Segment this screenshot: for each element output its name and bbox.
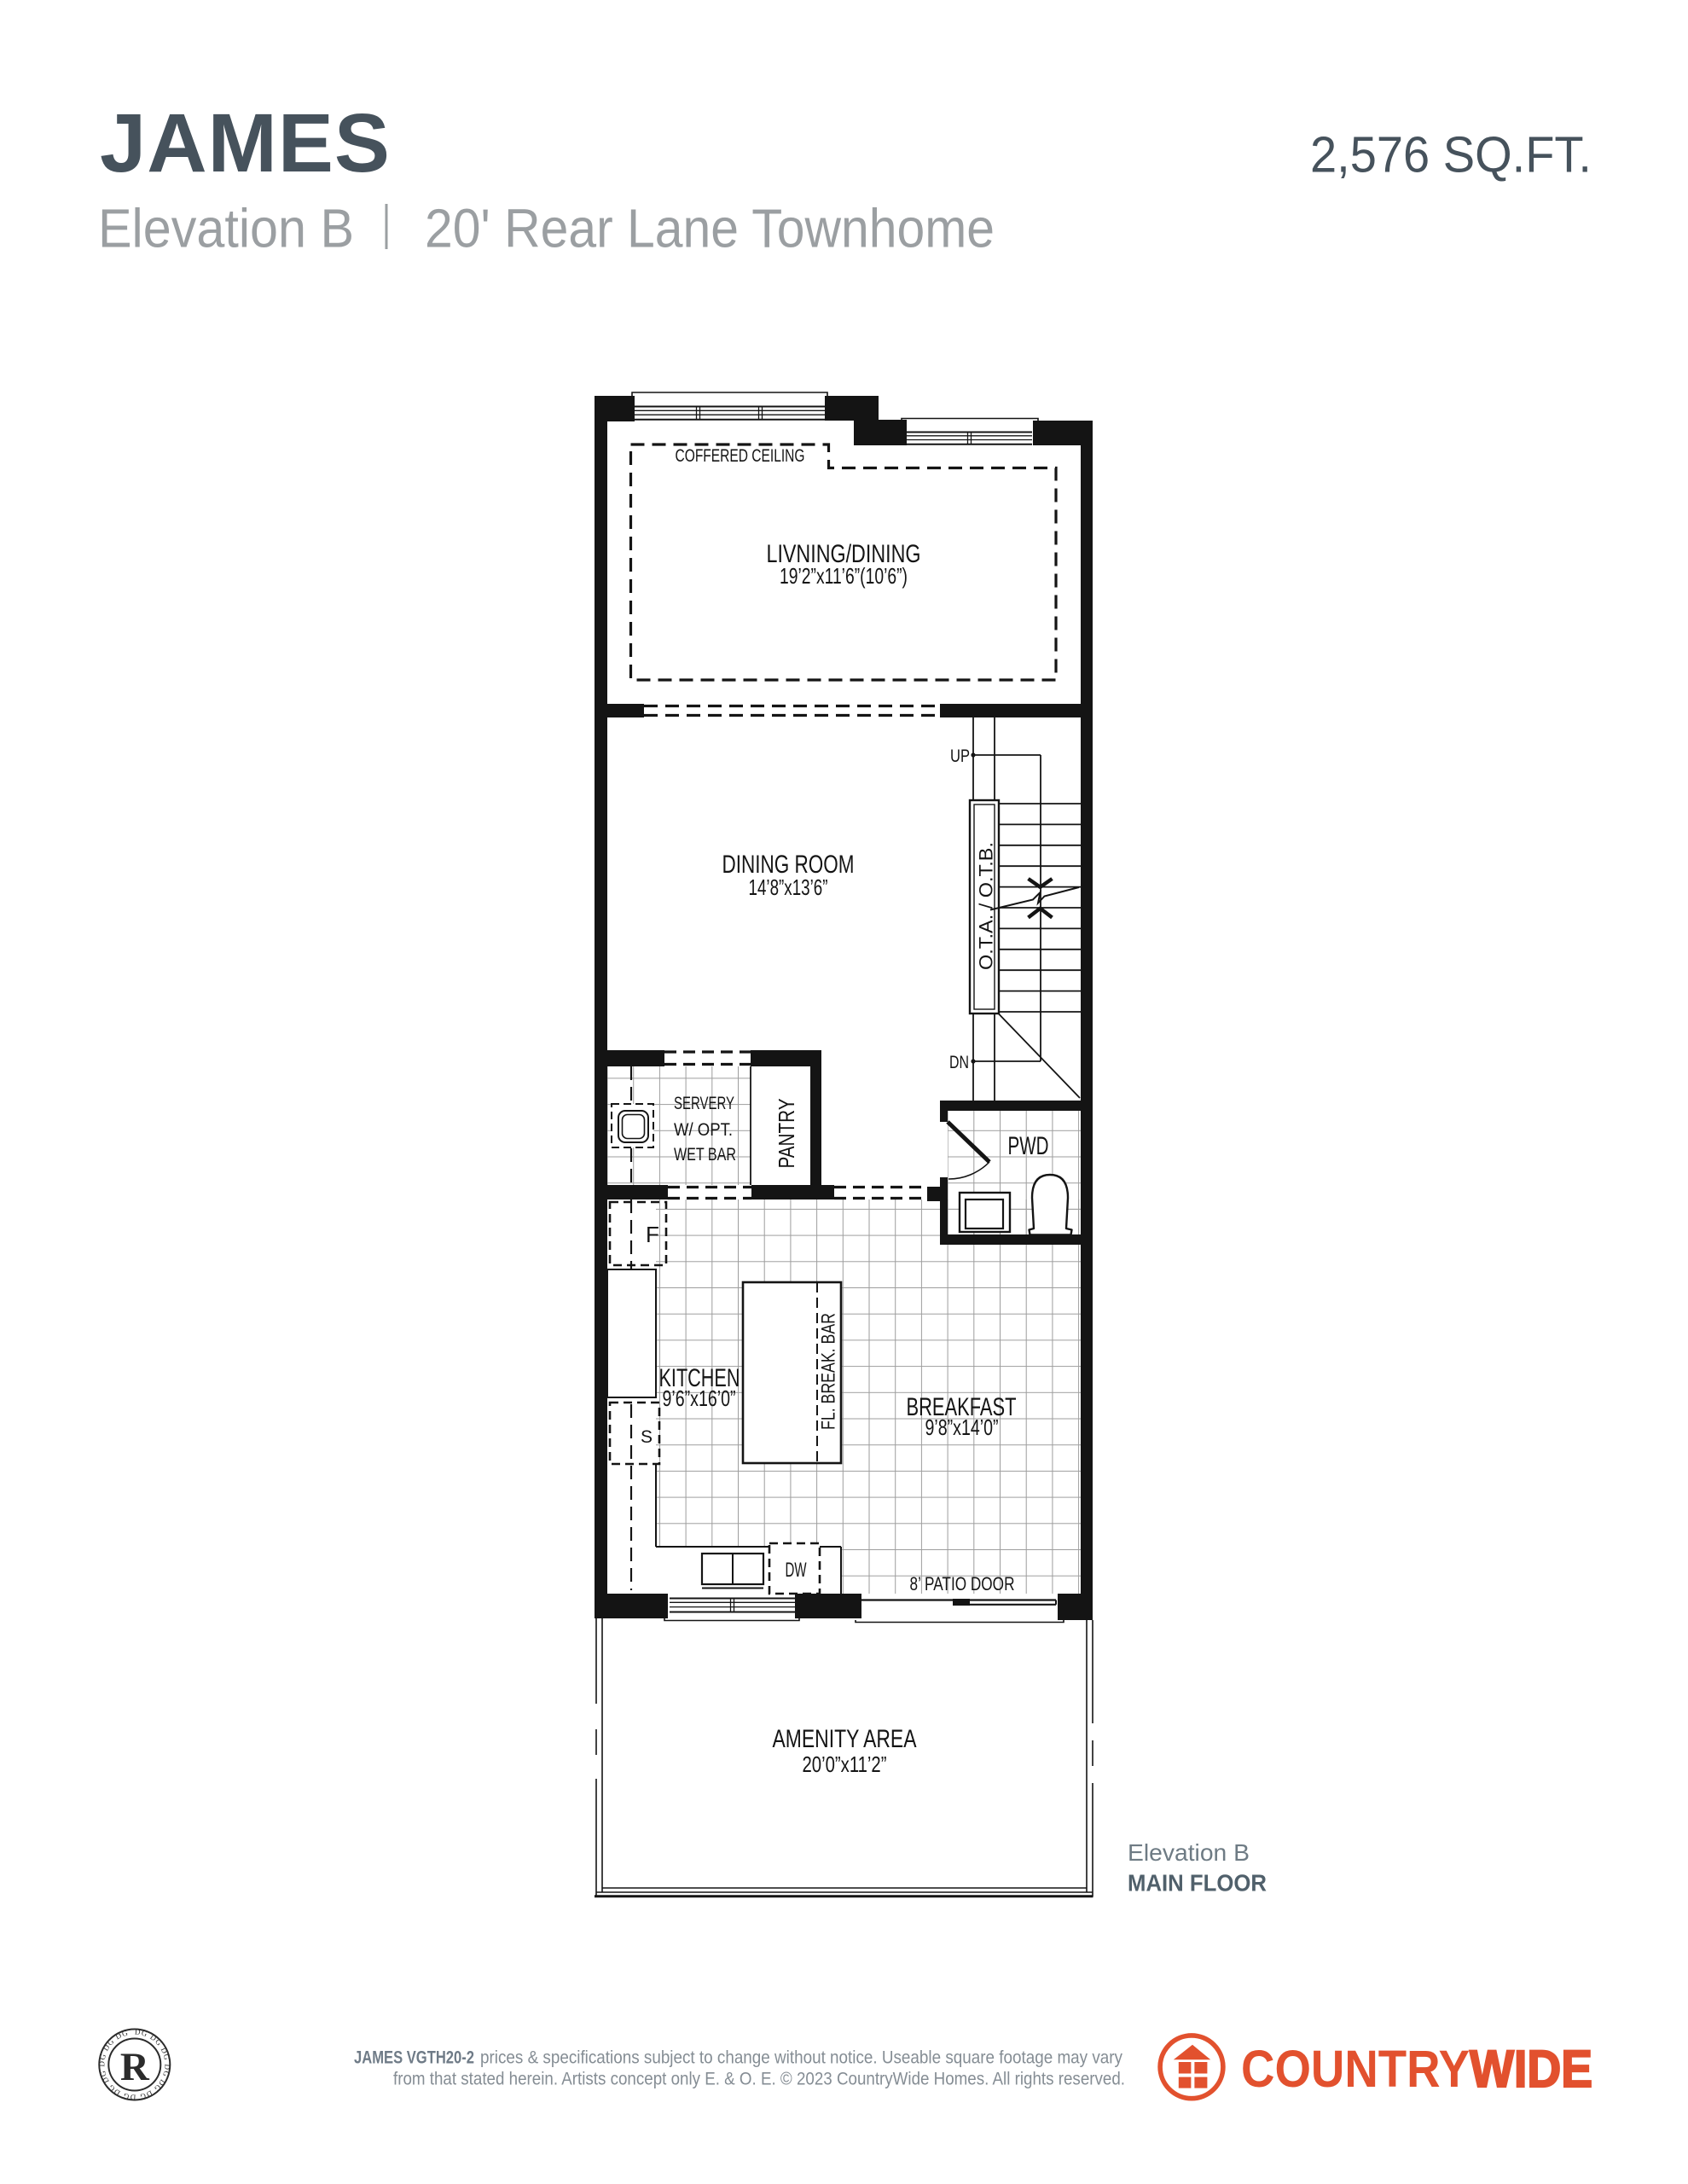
svg-text:9’8”x14’0”: 9’8”x14’0” bbox=[925, 1414, 999, 1440]
svg-text:AMENITY AREA: AMENITY AREA bbox=[773, 1725, 917, 1753]
svg-text:2,576 SQ.FT.: 2,576 SQ.FT. bbox=[1310, 127, 1592, 183]
svg-text:COUNTRY: COUNTRY bbox=[1241, 2040, 1470, 2098]
svg-text:O.T.A. / O.T.B.: O.T.A. / O.T.B. bbox=[976, 842, 997, 970]
svg-text:JAMES: JAMES bbox=[100, 96, 391, 189]
svg-text:Elevation B: Elevation B bbox=[98, 198, 354, 259]
svg-text:PANTRY: PANTRY bbox=[774, 1099, 799, 1169]
svg-text:20’0”x11’2”: 20’0”x11’2” bbox=[803, 1751, 887, 1777]
svg-text:JAMES VGTH20-2: JAMES VGTH20-2 bbox=[354, 2047, 474, 2068]
svg-text:PWD: PWD bbox=[1008, 1132, 1049, 1160]
svg-text:DN: DN bbox=[949, 1053, 969, 1072]
svg-text:DW: DW bbox=[786, 1559, 807, 1582]
svg-text:14’8”x13’6”: 14’8”x13’6” bbox=[749, 874, 828, 900]
svg-text:COFFERED CEILING: COFFERED CEILING bbox=[676, 446, 805, 466]
svg-text:20' Rear Lane Townhome: 20' Rear Lane Townhome bbox=[425, 198, 995, 259]
svg-text:UP: UP bbox=[950, 746, 970, 766]
svg-text:F: F bbox=[646, 1222, 659, 1247]
svg-text:9’6”x16’0”: 9’6”x16’0” bbox=[663, 1385, 736, 1411]
svg-text:SERVERY: SERVERY bbox=[674, 1094, 734, 1113]
svg-text:WIDE: WIDE bbox=[1470, 2040, 1592, 2098]
svg-text:MAIN FLOOR: MAIN FLOOR bbox=[1128, 1870, 1267, 1896]
svg-text:S: S bbox=[641, 1427, 653, 1447]
svg-text:from that stated herein. Artis: from that stated herein. Artists concept… bbox=[393, 2069, 1125, 2089]
svg-text:W/ OPT.: W/ OPT. bbox=[674, 1120, 733, 1140]
svg-text:Elevation B: Elevation B bbox=[1128, 1839, 1250, 1866]
svg-text:19’2”x11’6”(10’6”): 19’2”x11’6”(10’6”) bbox=[780, 563, 908, 589]
svg-text:WET BAR: WET BAR bbox=[674, 1145, 736, 1165]
svg-text:8’ PATIO DOOR: 8’ PATIO DOOR bbox=[910, 1573, 1015, 1594]
svg-text:prices & specifications subjec: prices & specifications subject to chang… bbox=[480, 2047, 1122, 2068]
svg-text:R: R bbox=[120, 2045, 150, 2089]
svg-text:FL. BREAK. BAR: FL. BREAK. BAR bbox=[818, 1313, 839, 1430]
